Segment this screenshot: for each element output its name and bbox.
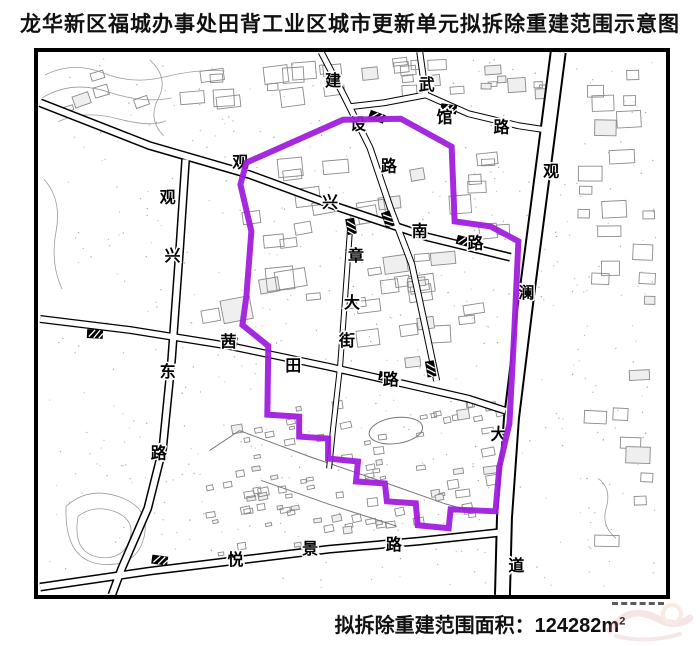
road-label-char-yuejing-lu: 景 [302, 540, 318, 558]
road-label-char-guanxing-nan-lu: 路 [468, 233, 485, 252]
road-label-char-guanxing-dong-lu: 观 [160, 188, 176, 206]
map-title: 龙华新区福城办事处田背工业区城市更新单元拟拆除重建范围示意图 [0, 8, 700, 38]
area-caption-label: 拟拆除重建范围面积： [335, 615, 535, 637]
road-label-char-guanxing-dong-lu: 路 [151, 444, 168, 463]
road-label-char-guanxing-nan-lu: 南 [412, 221, 428, 240]
page: 龙华新区福城办事处田背工业区城市更新单元拟拆除重建范围示意图 观澜大道观兴南路观… [0, 0, 700, 646]
road-label-char-guanlan-dadao: 道 [508, 556, 524, 575]
road-label-char-qiantian-lu: 田 [285, 357, 301, 375]
road-label-char-wuguan-lu: 路 [493, 118, 510, 137]
road-label-char-wuguan-lu: 馆 [437, 108, 453, 127]
road-label-char-guanxing-dong-lu: 兴 [165, 247, 181, 265]
road-label-char-jianshe-lu: 建 [325, 72, 341, 90]
watermark [602, 596, 698, 644]
map-lanes [210, 431, 469, 527]
oval-feature [367, 414, 424, 447]
road-label-char-guanxing-dong-lu: 东 [160, 362, 176, 381]
road-label-char-wuguan-lu: 武 [419, 75, 435, 94]
crossing-hatch-icon [87, 329, 103, 339]
road-label-char-zhang-dajie: 街 [338, 331, 355, 350]
road-label-char-guanxing-nan-lu: 兴 [322, 193, 338, 211]
crossing-hatch-icon [151, 555, 168, 566]
road-label-char-yuejing-lu: 悦 [227, 550, 243, 569]
road-label-char-zhang-dajie: 章 [348, 246, 364, 265]
map-canvas: 观澜大道观兴南路观兴东路悦景路茜田路建设路武馆路章大街 [38, 52, 666, 595]
road-label-char-qiantian-lu: 路 [383, 370, 400, 389]
road-label-char-jianshe-lu: 路 [381, 157, 398, 176]
road-label-char-guanlan-dadao: 澜 [518, 283, 534, 302]
road-label-char-yuejing-lu: 路 [386, 535, 403, 554]
road-label-char-guanlan-dadao: 观 [543, 163, 559, 181]
road-label-char-zhang-dajie: 大 [344, 293, 360, 312]
road-label-char-qiantian-lu: 茜 [220, 332, 236, 351]
area-value: 124282 [535, 615, 602, 637]
